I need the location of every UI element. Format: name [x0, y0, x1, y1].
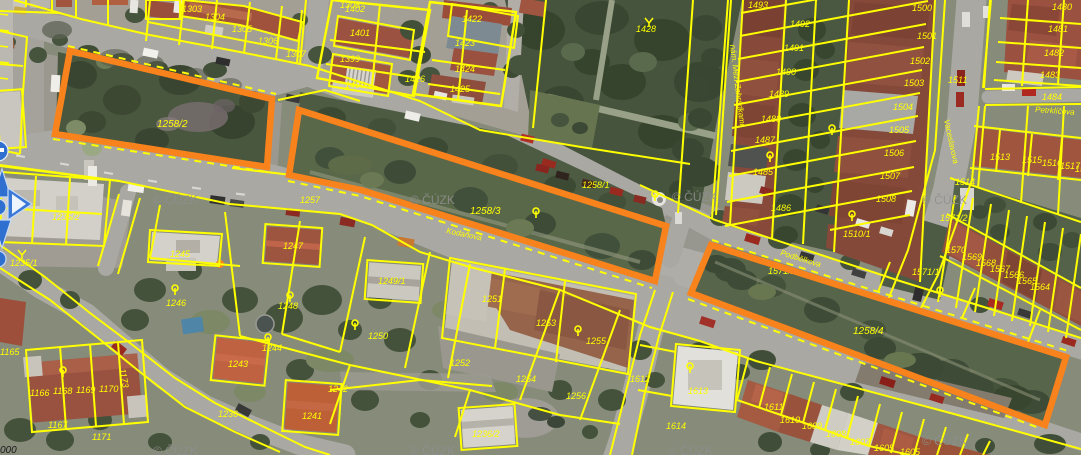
svg-text:1482: 1482 [1044, 48, 1064, 58]
svg-text:1511: 1511 [948, 75, 967, 85]
svg-text:1610: 1610 [780, 415, 800, 425]
svg-text:1490: 1490 [776, 67, 796, 77]
svg-text:1399: 1399 [340, 54, 360, 64]
svg-text:1501: 1501 [917, 31, 937, 41]
svg-text:1422: 1422 [462, 14, 482, 24]
svg-text:1484: 1484 [1042, 92, 1062, 102]
svg-text:1168: 1168 [53, 386, 72, 396]
svg-text:1507: 1507 [880, 171, 901, 181]
svg-text:1241: 1241 [302, 411, 322, 421]
svg-text:1613: 1613 [688, 386, 708, 396]
svg-text:1400: 1400 [345, 80, 365, 90]
svg-text:1612: 1612 [630, 374, 650, 384]
svg-text:1166: 1166 [30, 388, 49, 398]
svg-text:1481: 1481 [1048, 24, 1068, 34]
svg-text:1252: 1252 [450, 358, 470, 368]
svg-text:1504: 1504 [893, 102, 913, 112]
svg-text:1250: 1250 [368, 331, 388, 341]
svg-text:1493: 1493 [748, 0, 768, 10]
svg-text:1253: 1253 [536, 318, 556, 328]
svg-text:1611: 1611 [764, 402, 783, 412]
svg-text:1249/1: 1249/1 [378, 276, 406, 286]
svg-text:© ČÚZK: © ČÚZK [153, 192, 198, 207]
svg-text:1254: 1254 [516, 374, 536, 384]
svg-text:1251: 1251 [482, 294, 502, 304]
svg-text:1571/2: 1571/2 [940, 213, 968, 223]
svg-text:1607: 1607 [850, 437, 871, 447]
svg-text:1303: 1303 [182, 4, 202, 14]
svg-text:© ČÚZK: © ČÚZK [922, 192, 967, 207]
svg-text:1248: 1248 [278, 301, 298, 311]
svg-text:1257: 1257 [300, 195, 321, 205]
svg-text:1513: 1513 [990, 152, 1010, 162]
svg-text:1506: 1506 [884, 148, 904, 158]
svg-text:1487: 1487 [755, 135, 776, 145]
svg-text:1401: 1401 [350, 28, 370, 38]
svg-text:© ČÚZK: © ČÚZK [672, 189, 717, 204]
svg-text:1307: 1307 [286, 49, 307, 59]
svg-text:1247: 1247 [283, 241, 304, 251]
svg-text:1564: 1564 [1030, 282, 1050, 292]
svg-text:1258/3: 1258/3 [470, 206, 501, 217]
svg-text:1486: 1486 [771, 203, 791, 213]
svg-text:1423: 1423 [455, 38, 475, 48]
svg-text:1256: 1256 [566, 391, 586, 401]
svg-text:1243: 1243 [228, 359, 248, 369]
svg-text:1304: 1304 [205, 12, 225, 22]
svg-text:1605: 1605 [900, 447, 921, 455]
svg-text:1488: 1488 [761, 114, 781, 124]
svg-text:1515: 1515 [1022, 155, 1043, 165]
svg-text:1236: 1236 [218, 409, 238, 419]
svg-text:1571/1: 1571/1 [912, 267, 940, 277]
svg-text:1510/1: 1510/1 [843, 229, 871, 239]
svg-text:1235/1: 1235/1 [10, 258, 38, 268]
svg-text:© ČÚZK: © ČÚZK [410, 443, 455, 455]
svg-text:1258/1: 1258/1 [582, 180, 610, 190]
svg-text:1492: 1492 [790, 19, 810, 29]
svg-text:1519: 1519 [1075, 164, 1081, 174]
svg-text:1608: 1608 [826, 429, 846, 439]
svg-text:© ČÚZK: © ČÚZK [668, 443, 713, 455]
svg-text:1425: 1425 [450, 84, 471, 94]
svg-text:1258/2: 1258/2 [157, 119, 188, 130]
svg-text:1491: 1491 [784, 43, 804, 53]
svg-text:© ČÚZK: © ČÚZK [922, 433, 967, 448]
svg-text:1480: 1480 [1052, 2, 1072, 12]
svg-text:1605: 1605 [874, 443, 895, 453]
svg-text:1483: 1483 [1040, 70, 1060, 80]
svg-text:1402: 1402 [345, 4, 365, 14]
svg-text:1485: 1485 [753, 167, 774, 177]
svg-text:1242: 1242 [328, 384, 348, 394]
svg-text:1306: 1306 [258, 36, 278, 46]
svg-text:1514: 1514 [955, 177, 975, 187]
svg-text:© ČÚZK: © ČÚZK [410, 192, 455, 207]
svg-text:000: 000 [0, 445, 17, 455]
svg-text:1305: 1305 [232, 24, 253, 34]
svg-text:1244: 1244 [262, 343, 282, 353]
svg-text:1502: 1502 [910, 56, 930, 66]
svg-text:1258/4: 1258/4 [853, 326, 884, 337]
svg-text:1246: 1246 [166, 298, 186, 308]
svg-text:1255: 1255 [586, 336, 607, 346]
svg-text:1614: 1614 [666, 421, 686, 431]
svg-text:1245: 1245 [170, 249, 191, 259]
svg-text:1171: 1171 [92, 432, 111, 442]
svg-text:1169: 1169 [76, 385, 95, 395]
svg-text:1424: 1424 [455, 64, 475, 74]
svg-text:1167: 1167 [48, 420, 68, 430]
svg-text:1236/2: 1236/2 [472, 429, 500, 439]
svg-text:1489: 1489 [769, 89, 789, 99]
svg-text:1235/2: 1235/2 [52, 212, 80, 222]
svg-text:1500: 1500 [912, 3, 932, 13]
svg-text:1170: 1170 [99, 384, 118, 394]
svg-text:1505: 1505 [889, 125, 910, 135]
svg-text:1165: 1165 [0, 347, 20, 357]
svg-text:1426: 1426 [405, 74, 425, 84]
svg-text:1503: 1503 [904, 78, 924, 88]
svg-text:1508: 1508 [876, 194, 896, 204]
svg-text:© ČÚZK: © ČÚZK [153, 443, 198, 455]
svg-text:1609: 1609 [802, 421, 822, 431]
svg-text:1428: 1428 [636, 24, 656, 34]
